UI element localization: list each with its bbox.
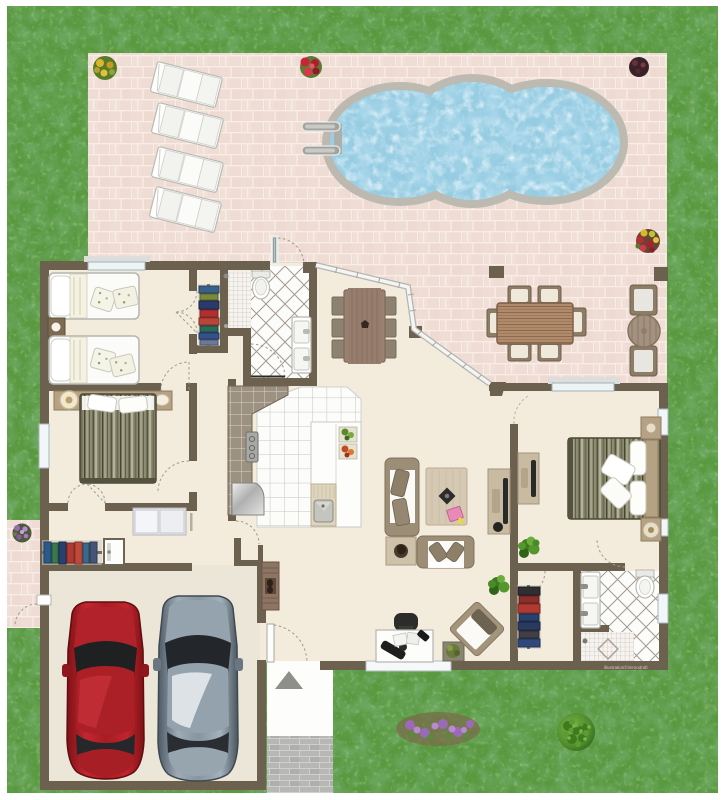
svg-text:illustration©immodraft: illustration©immodraft [604,664,648,670]
